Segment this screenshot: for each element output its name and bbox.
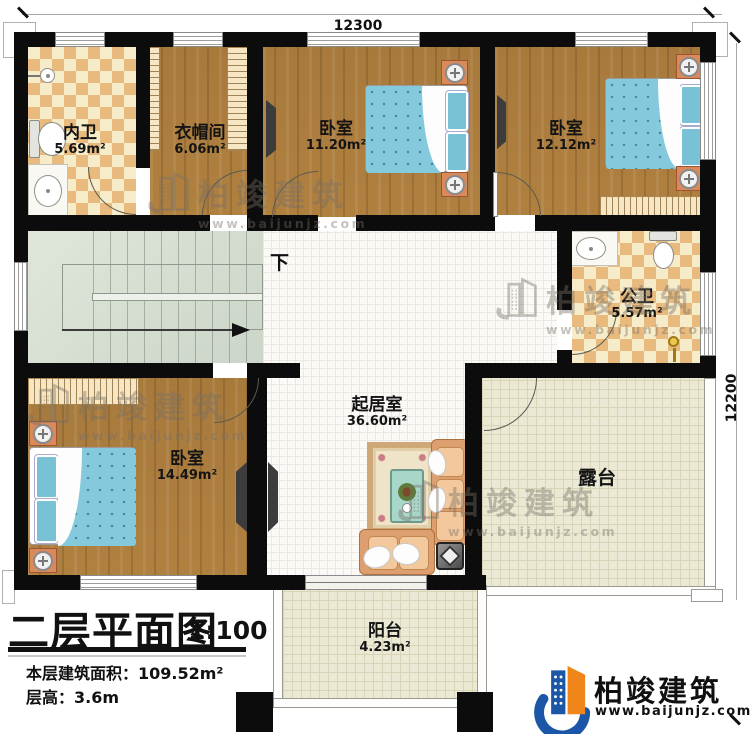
brand-url: www.baijunjz.com [595, 704, 750, 719]
wall-segment [535, 215, 716, 231]
lamp-icon [445, 175, 465, 195]
nightstand [676, 54, 702, 79]
window [575, 32, 648, 47]
tv-icon [268, 462, 278, 532]
door-leaf [493, 172, 498, 217]
lamp-icon [679, 169, 699, 189]
lamp-icon [33, 551, 53, 571]
wall-segment [557, 231, 572, 310]
stair-direction-arrow [232, 323, 250, 337]
nightstand [29, 548, 57, 573]
stair-down-label: 下 [270, 248, 289, 275]
room-label-bedroom-right: 卧室 12.12m² [536, 120, 596, 154]
floor-area-row: 本层建筑面积：109.52m² [26, 660, 223, 684]
stair-direction-line [62, 329, 234, 331]
nightstand [441, 172, 468, 197]
wardrobe-bedroom-bottom [28, 378, 139, 405]
window [55, 32, 105, 47]
bed-bedroom-right [605, 78, 702, 168]
room-label-terrace: 露台 [578, 468, 616, 489]
wall-segment [465, 378, 482, 590]
room-label-balcony: 阳台 4.23m² [359, 622, 410, 656]
nightstand [29, 421, 57, 446]
plant-icon [398, 483, 416, 501]
tv-icon [266, 100, 276, 158]
room-label-living: 起居室 36.60m² [347, 396, 407, 430]
sink-icon [576, 237, 606, 260]
lamp-icon [445, 63, 465, 83]
balcony-railing [477, 585, 487, 700]
plan-scale: 1:100 [188, 616, 268, 645]
bed-bedroom-top [365, 85, 468, 172]
wall-segment [247, 47, 263, 215]
floor-height-row: 层高：3.6m [26, 684, 119, 708]
toilet-icon [653, 242, 674, 269]
sliding-door-balcony [305, 575, 427, 590]
nightstand [676, 166, 702, 191]
wall-segment [197, 575, 305, 590]
room-label-bathroom-public: 公卫 5.57m² [611, 288, 662, 322]
window [307, 32, 420, 47]
room-label-bedroom-bottom: 卧室 14.49m² [157, 450, 217, 484]
room-label-cloakroom: 衣帽间 6.06m² [174, 124, 225, 158]
window [173, 32, 223, 47]
shower-head-icon [668, 336, 679, 347]
window [700, 62, 716, 160]
balcony-railing [273, 585, 283, 700]
tv-icon [236, 462, 247, 532]
top-dimension-line [22, 14, 722, 15]
wall-segment [356, 215, 495, 231]
shower-stem [673, 348, 676, 362]
floor-area-value: 109.52m² [138, 664, 223, 683]
terrace-step [691, 589, 723, 602]
title-underline [8, 647, 246, 652]
bed-bedroom-bottom [29, 447, 135, 545]
room-label-ensuite: 内卫 5.69m² [54, 124, 105, 158]
closet-bedroom-right [600, 196, 701, 216]
dimension-tick [17, 6, 29, 18]
stair-handrail [92, 293, 263, 301]
title-underline-thin [8, 655, 246, 657]
dimension-tick [729, 31, 741, 43]
brand-logo-icon [530, 666, 592, 734]
wall-segment [14, 575, 80, 590]
tv-icon [497, 95, 506, 149]
floor-area-label: 本层建筑面积： [26, 664, 138, 683]
wall-segment [28, 215, 210, 231]
wall-segment [427, 575, 486, 590]
window [14, 262, 28, 331]
floor-height-label: 层高： [26, 688, 74, 707]
nightstand [441, 60, 468, 85]
coffee-table [390, 469, 424, 523]
right-dimension-line [736, 43, 737, 600]
fireplace-icon [436, 542, 464, 570]
lamp-icon [679, 57, 699, 77]
cup-icon [402, 503, 412, 513]
room-label-bedroom-top: 卧室 11.20m² [306, 120, 366, 154]
dimension-tick [703, 6, 715, 18]
terrace-railing [482, 586, 716, 596]
shower-head-icon [40, 68, 55, 83]
balcony-railing [273, 698, 487, 708]
terrace-railing [704, 378, 716, 596]
wardrobe-rack [227, 47, 248, 151]
floor-height-value: 3.6m [74, 688, 119, 707]
balcony-column [457, 692, 493, 732]
sink-icon [34, 175, 62, 207]
wall-segment [465, 363, 716, 378]
balcony-column [236, 692, 273, 732]
wall-segment [136, 47, 150, 168]
floor-plan-canvas: 12300 12200 [0, 0, 750, 739]
window [700, 272, 716, 356]
wall-segment [247, 215, 318, 231]
window [80, 575, 197, 590]
right-dimension-label: 12200 [724, 370, 740, 426]
toilet-tank [649, 231, 677, 241]
lamp-icon [33, 424, 53, 444]
wall-segment [14, 363, 213, 378]
